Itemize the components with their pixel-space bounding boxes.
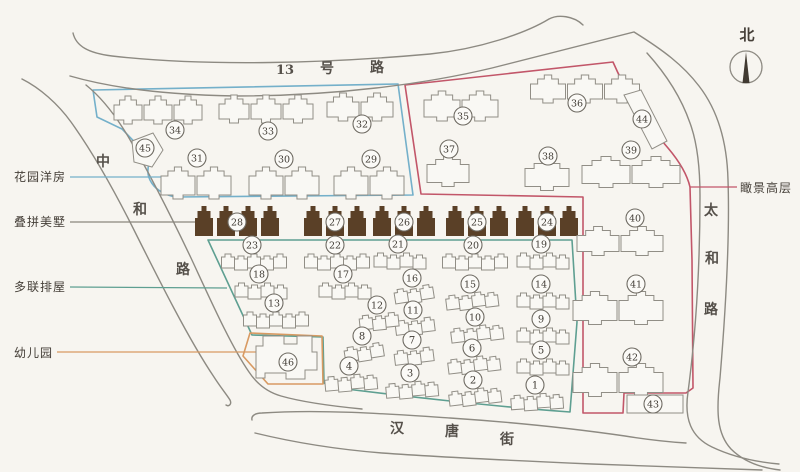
legend-label-garden: 花园洋房 xyxy=(14,169,66,184)
marker-number-14: 14 xyxy=(535,280,547,291)
marker-number-4: 4 xyxy=(346,362,352,373)
building-marker-9: 9 xyxy=(532,310,550,328)
marker-number-23: 23 xyxy=(246,241,258,252)
marker-number-41: 41 xyxy=(630,280,642,291)
building-marker-4: 4 xyxy=(340,357,358,375)
building-marker-12: 12 xyxy=(368,296,386,314)
site-plan-svg: 花园洋房叠拼美墅多联排屋幼儿园瞰景高层123456789101112131415… xyxy=(0,0,800,472)
marker-number-34: 34 xyxy=(169,126,181,137)
marker-number-19: 19 xyxy=(535,240,547,251)
marker-number-33: 33 xyxy=(262,127,274,138)
building-marker-16: 16 xyxy=(403,269,421,287)
building-marker-8: 8 xyxy=(353,327,371,345)
marker-number-26: 26 xyxy=(398,218,410,229)
marker-number-6: 6 xyxy=(469,344,475,355)
building-marker-11: 11 xyxy=(404,301,422,319)
marker-number-35: 35 xyxy=(457,112,469,123)
building-marker-10: 10 xyxy=(466,308,484,326)
building-marker-14: 14 xyxy=(532,275,550,293)
marker-number-28: 28 xyxy=(231,218,243,229)
marker-number-21: 21 xyxy=(392,240,404,251)
building-marker-37: 37 xyxy=(440,140,458,158)
building-marker-26: 26 xyxy=(395,213,413,231)
building-marker-29: 29 xyxy=(362,150,380,168)
marker-number-37: 37 xyxy=(443,145,455,156)
marker-number-2: 2 xyxy=(470,376,476,387)
road-char-south-2: 街 xyxy=(499,431,514,448)
marker-number-20: 20 xyxy=(467,241,479,252)
road-char-east-1: 和 xyxy=(705,251,719,267)
marker-number-25: 25 xyxy=(471,218,483,229)
building-34 xyxy=(114,96,202,124)
building-marker-24: 24 xyxy=(538,213,556,231)
building-marker-31: 31 xyxy=(188,149,206,167)
marker-number-1: 1 xyxy=(532,381,538,392)
building-marker-40: 40 xyxy=(626,209,644,227)
road-char-north-0: 13 xyxy=(276,63,294,78)
building-marker-39: 39 xyxy=(622,141,640,159)
building-marker-36: 36 xyxy=(568,94,586,112)
building-marker-28: 28 xyxy=(228,213,246,231)
building-marker-38: 38 xyxy=(539,147,557,165)
road-char-east-2: 路 xyxy=(704,301,719,318)
building-marker-41: 41 xyxy=(627,275,645,293)
building-marker-17: 17 xyxy=(334,265,352,283)
building-marker-21: 21 xyxy=(389,235,407,253)
marker-number-30: 30 xyxy=(278,155,290,166)
building-marker-42: 42 xyxy=(623,348,641,366)
building-marker-33: 33 xyxy=(259,122,277,140)
marker-number-13: 13 xyxy=(268,299,280,310)
marker-number-44: 44 xyxy=(636,115,648,126)
road-char-south-1: 唐 xyxy=(445,423,459,440)
marker-number-5: 5 xyxy=(538,346,544,357)
building-20 xyxy=(443,254,508,270)
road-char-south-0: 汉 xyxy=(390,421,405,437)
marker-number-9: 9 xyxy=(538,315,544,326)
site-plan: 花园洋房叠拼美墅多联排屋幼儿园瞰景高层123456789101112131415… xyxy=(0,0,800,472)
legend-label-kindergarten: 幼儿园 xyxy=(14,346,53,360)
compass-north-label: 北 xyxy=(739,26,754,44)
building-marker-46: 46 xyxy=(279,353,297,371)
marker-number-32: 32 xyxy=(356,120,368,131)
building-marker-7: 7 xyxy=(403,331,421,349)
marker-number-10: 10 xyxy=(469,313,481,324)
road-char-west-1: 和 xyxy=(133,202,147,218)
building-marker-45: 45 xyxy=(136,139,154,157)
building-marker-1: 1 xyxy=(526,376,544,394)
building-marker-2: 2 xyxy=(464,371,482,389)
building-marker-35: 35 xyxy=(454,107,472,125)
marker-number-45: 45 xyxy=(139,144,151,155)
building-marker-6: 6 xyxy=(463,339,481,357)
marker-number-17: 17 xyxy=(337,270,349,281)
road-char-north-2: 路 xyxy=(370,59,385,76)
marker-number-27: 27 xyxy=(329,218,341,229)
building-marker-25: 25 xyxy=(468,213,486,231)
marker-number-15: 15 xyxy=(464,280,476,291)
road-char-west-0: 中 xyxy=(96,153,110,170)
road-char-west-2: 路 xyxy=(176,261,191,278)
building-marker-43: 43 xyxy=(644,395,662,413)
building-marker-15: 15 xyxy=(461,275,479,293)
marker-number-12: 12 xyxy=(371,301,383,312)
marker-number-43: 43 xyxy=(647,400,659,411)
marker-number-16: 16 xyxy=(406,274,418,285)
marker-number-11: 11 xyxy=(407,306,419,317)
marker-number-22: 22 xyxy=(329,241,341,252)
marker-number-42: 42 xyxy=(626,353,638,364)
marker-number-8: 8 xyxy=(359,332,365,343)
building-33 xyxy=(219,95,313,123)
marker-number-31: 31 xyxy=(191,154,203,165)
marker-number-3: 3 xyxy=(407,369,413,380)
building-13 xyxy=(244,312,309,328)
building-marker-5: 5 xyxy=(532,341,550,359)
legend-label-townhouse: 多联排屋 xyxy=(14,280,66,294)
building-marker-3: 3 xyxy=(401,364,419,382)
marker-number-40: 40 xyxy=(629,214,641,225)
building-marker-34: 34 xyxy=(166,121,184,139)
marker-number-7: 7 xyxy=(409,336,415,347)
marker-number-38: 38 xyxy=(542,152,554,163)
building-marker-30: 30 xyxy=(275,150,293,168)
marker-number-46: 46 xyxy=(282,358,294,369)
road-char-north-1: 号 xyxy=(320,61,334,77)
marker-number-18: 18 xyxy=(253,270,265,281)
building-marker-44: 44 xyxy=(633,110,651,128)
marker-number-39: 39 xyxy=(625,146,637,157)
building-marker-20: 20 xyxy=(464,236,482,254)
building-marker-23: 23 xyxy=(243,236,261,254)
building-marker-22: 22 xyxy=(326,236,344,254)
building-marker-32: 32 xyxy=(353,115,371,133)
marker-number-24: 24 xyxy=(541,218,553,229)
road-char-east-0: 太 xyxy=(704,202,719,219)
building-marker-13: 13 xyxy=(265,294,283,312)
building-marker-27: 27 xyxy=(326,213,344,231)
legend-label-villa: 叠拼美墅 xyxy=(14,215,66,229)
marker-number-36: 36 xyxy=(571,99,583,110)
marker-number-29: 29 xyxy=(365,155,377,166)
building-marker-18: 18 xyxy=(250,265,268,283)
building-marker-19: 19 xyxy=(532,235,550,253)
legend-label-highrise: 瞰景高层 xyxy=(740,180,792,195)
